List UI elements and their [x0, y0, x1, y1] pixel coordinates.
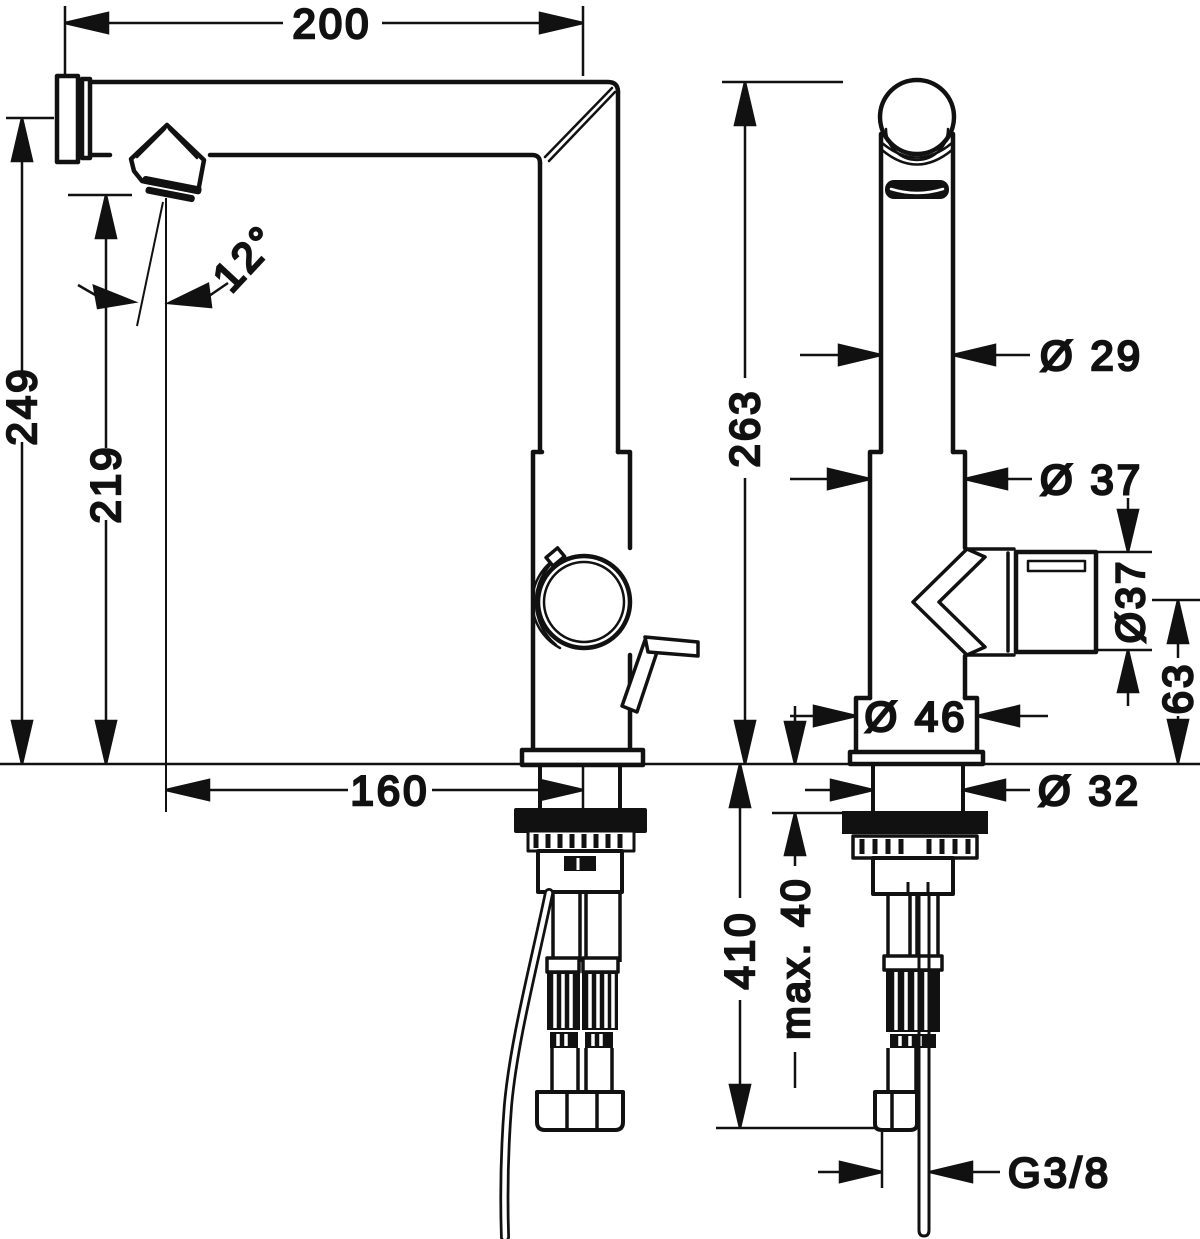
- hose-collar-left: [547, 958, 579, 972]
- dim-219: 219: [68, 195, 132, 764]
- faucet-dimension-drawing: 200 249 219 12°: [0, 0, 1200, 1239]
- miter-joint: [545, 88, 615, 161]
- spout-end-cap: [57, 76, 78, 162]
- dim-dia32: Ø 32: [805, 767, 1141, 814]
- dim-63: 63: [1152, 600, 1200, 763]
- dim-219-label: 219: [82, 444, 129, 523]
- drawing-canvas: 200 249 219 12°: [0, 0, 1200, 1239]
- dim-dia29: Ø 29: [800, 332, 1143, 379]
- spout-bottom-edge: [91, 155, 540, 163]
- front-gasket: [842, 811, 988, 834]
- gasket: [516, 810, 645, 831]
- dim-12deg-label: 12°: [203, 216, 287, 301]
- lever-handle: [622, 637, 698, 712]
- dim-249-label: 249: [0, 366, 45, 445]
- dim-200: 200: [65, 0, 583, 76]
- handle-cone: [913, 549, 985, 655]
- dim-dia46-label: Ø 46: [864, 693, 967, 740]
- spout-end-circle: [880, 80, 954, 154]
- curved-hose: [504, 893, 549, 1237]
- body-outline: [533, 452, 630, 750]
- front-clamp-ring: [853, 836, 977, 858]
- dial-offset-arc: [532, 556, 560, 648]
- aerator-outlet: [140, 175, 202, 203]
- front-hose-collar: [884, 956, 942, 970]
- front-tube-end: [888, 1048, 916, 1092]
- dim-160-label: 160: [350, 767, 429, 814]
- hose-collar-right: [583, 958, 618, 972]
- dim-dia37-body-label: Ø 37: [1040, 456, 1143, 503]
- shank-32: [873, 766, 963, 812]
- dim-g38-label: G3/8: [1008, 1149, 1111, 1196]
- dial-outer: [538, 556, 630, 648]
- spout-top-edge: [91, 82, 618, 92]
- dim-dia32-label: Ø 32: [1038, 767, 1141, 814]
- tube-ends: [552, 1048, 612, 1092]
- hose-stripe-left: [550, 1032, 578, 1048]
- right-view-outline: [850, 80, 1096, 764]
- dial-inner: [544, 562, 624, 642]
- clamp-detail: [564, 856, 596, 871]
- hose-stripe-right: [585, 1032, 613, 1048]
- dim-dia37-handle-label: Ø37: [1109, 559, 1153, 644]
- g38-nut: [875, 1092, 917, 1130]
- dim-max40-label: max. 40: [774, 876, 818, 1039]
- dim-200-label: 200: [292, 0, 371, 47]
- dim-160: 160: [166, 766, 583, 814]
- front-braided-hose: [886, 970, 940, 1032]
- dim-63-label: 63: [1154, 662, 1200, 715]
- dim-dia29-label: Ø 29: [1040, 332, 1143, 379]
- supply-tubes: [553, 892, 620, 962]
- front-base-plate: [850, 752, 983, 764]
- spout-end-ring: [82, 79, 90, 158]
- dim-g38: G3/8: [818, 1132, 1111, 1196]
- dim-dia46: Ø 46: [790, 693, 1048, 740]
- dim-263: 263: [721, 82, 843, 764]
- spray-angle-line: [137, 202, 163, 326]
- dim-263-label: 263: [721, 388, 768, 467]
- lever-bar: [645, 637, 698, 656]
- dim-dia37-handle: Ø37: [1098, 498, 1153, 706]
- pull-rod: [919, 894, 929, 1236]
- dim-249: 249: [0, 118, 54, 764]
- stripe-ribs: [558, 1034, 601, 1046]
- front-clamp-block: [873, 858, 953, 894]
- dim-410-label: 410: [716, 910, 763, 989]
- hex-nuts: [537, 1092, 623, 1130]
